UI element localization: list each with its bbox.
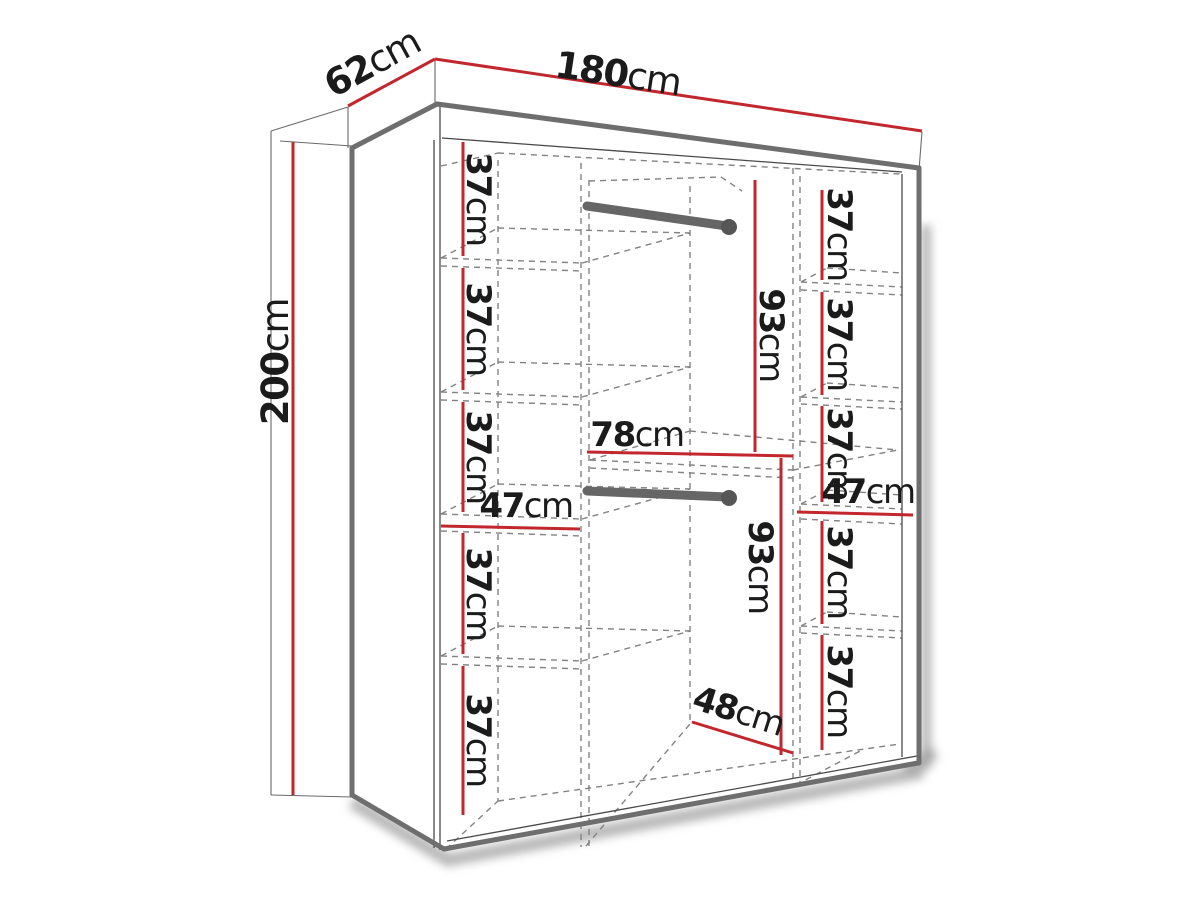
label-center-bottom-hanging: 93cm bbox=[740, 520, 780, 613]
wardrobe-dimension-diagram: 62cm 180cm 200cm 37cm 37cm 37cm 47cm 37c… bbox=[0, 0, 1200, 899]
top-rail-end-cap bbox=[721, 219, 737, 235]
label-right-width: 47cm bbox=[821, 472, 914, 512]
label-left-gap4: 37cm bbox=[458, 547, 498, 640]
label-left-gap2: 37cm bbox=[458, 282, 498, 375]
label-right-gap5: 37cm bbox=[819, 644, 859, 737]
label-center-width: 78cm bbox=[590, 415, 683, 455]
label-center-top-hanging: 93cm bbox=[751, 288, 791, 381]
bottom-hanging-rail bbox=[587, 491, 727, 497]
label-right-gap4: 37cm bbox=[819, 525, 859, 618]
diagram-canvas: 62cm 180cm 200cm 37cm 37cm 37cm 47cm 37c… bbox=[0, 0, 1200, 899]
bottom-rail-end-cap bbox=[721, 490, 737, 506]
label-right-gap2: 37cm bbox=[819, 297, 859, 390]
label-left-gap5: 37cm bbox=[458, 693, 498, 786]
label-left-width: 47cm bbox=[479, 486, 572, 526]
label-overall-height: 200cm bbox=[254, 299, 297, 425]
label-left-gap1: 37cm bbox=[458, 152, 498, 245]
label-right-gap1: 37cm bbox=[819, 187, 859, 280]
